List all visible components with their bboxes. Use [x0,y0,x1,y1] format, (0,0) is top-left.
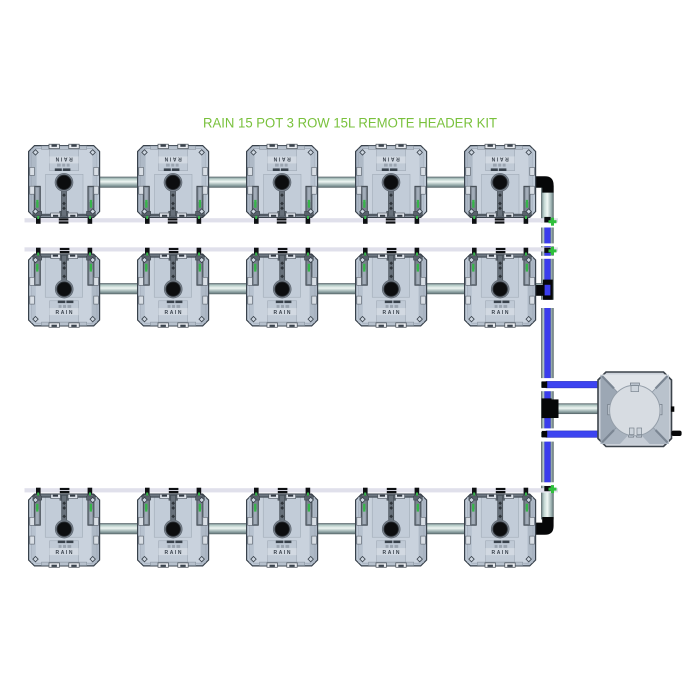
svg-text:RAIN 15 POT 3 ROW 15L REMOTE H: RAIN 15 POT 3 ROW 15L REMOTE HEADER KIT [203,116,497,131]
